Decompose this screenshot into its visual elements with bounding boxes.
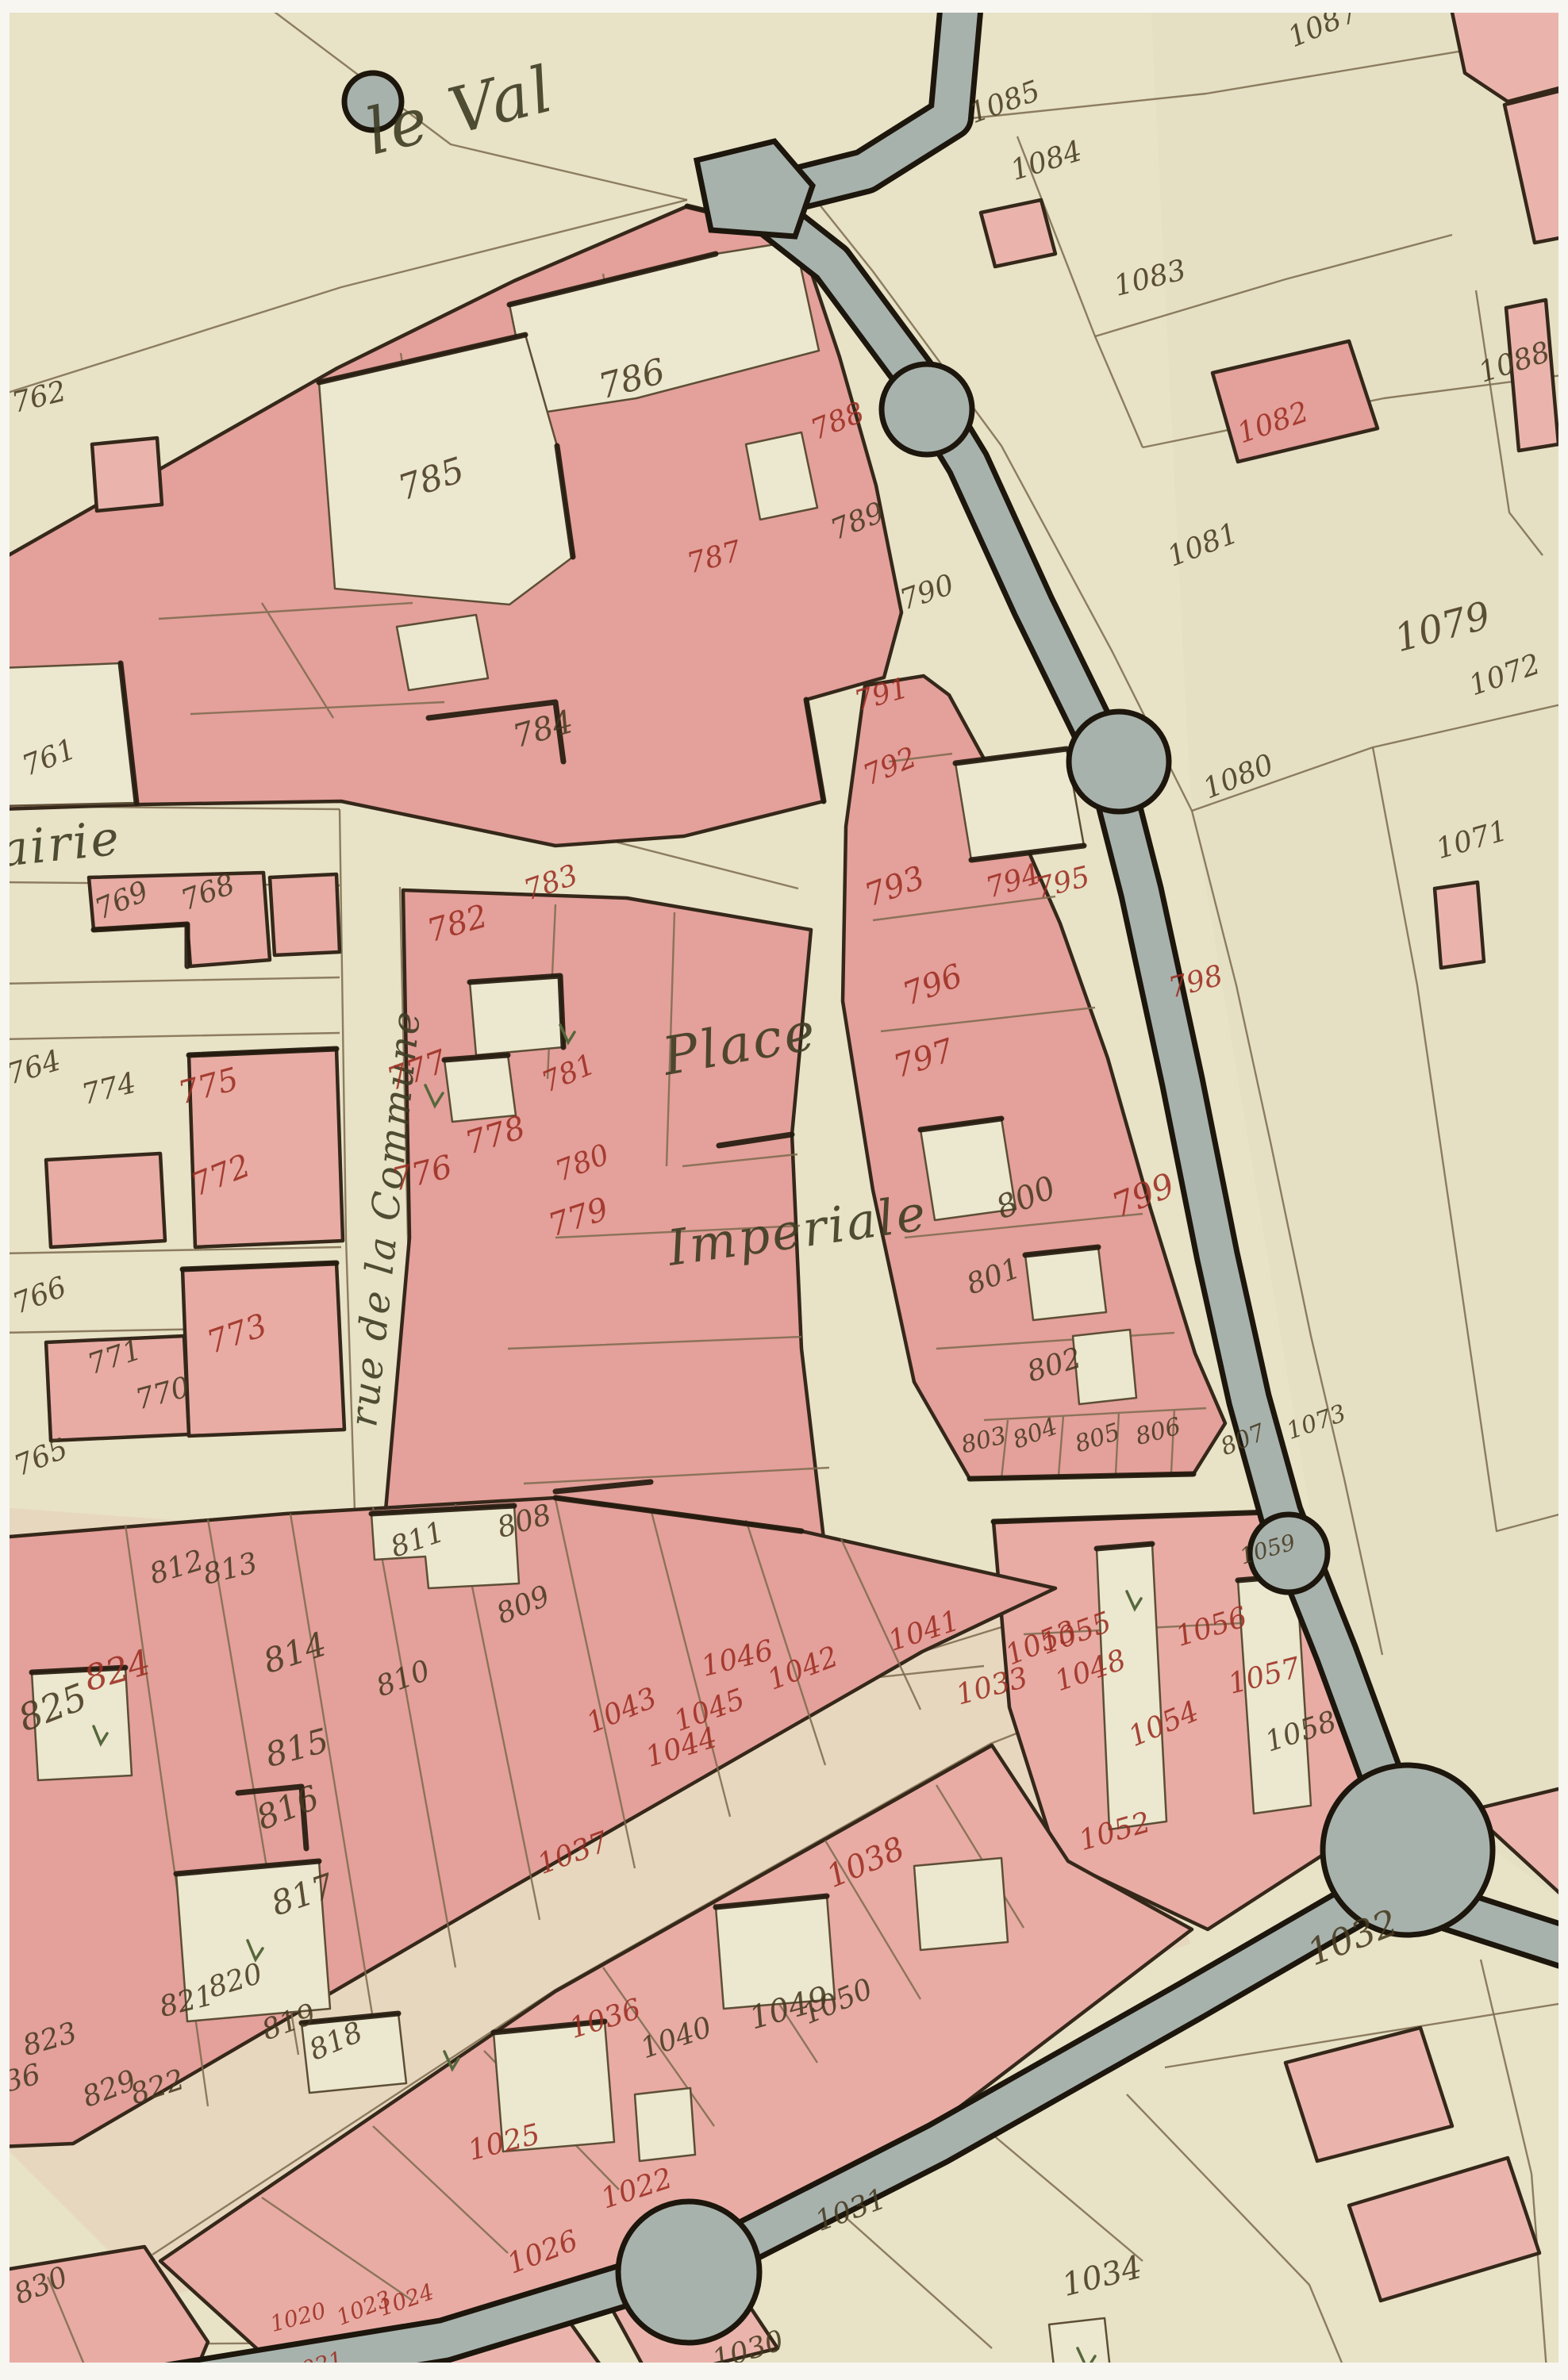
wall-tower-2 [1069,712,1169,812]
wall-tower-5 [618,2201,759,2343]
cadastral-map-page: le ValPlaceImperialerue de la Communeair… [0,0,1568,2380]
wall-tower-1 [882,364,972,455]
cadastral-map: le ValPlaceImperialerue de la Communeair… [0,0,1568,2380]
wall-tower-4 [1323,1765,1493,1935]
